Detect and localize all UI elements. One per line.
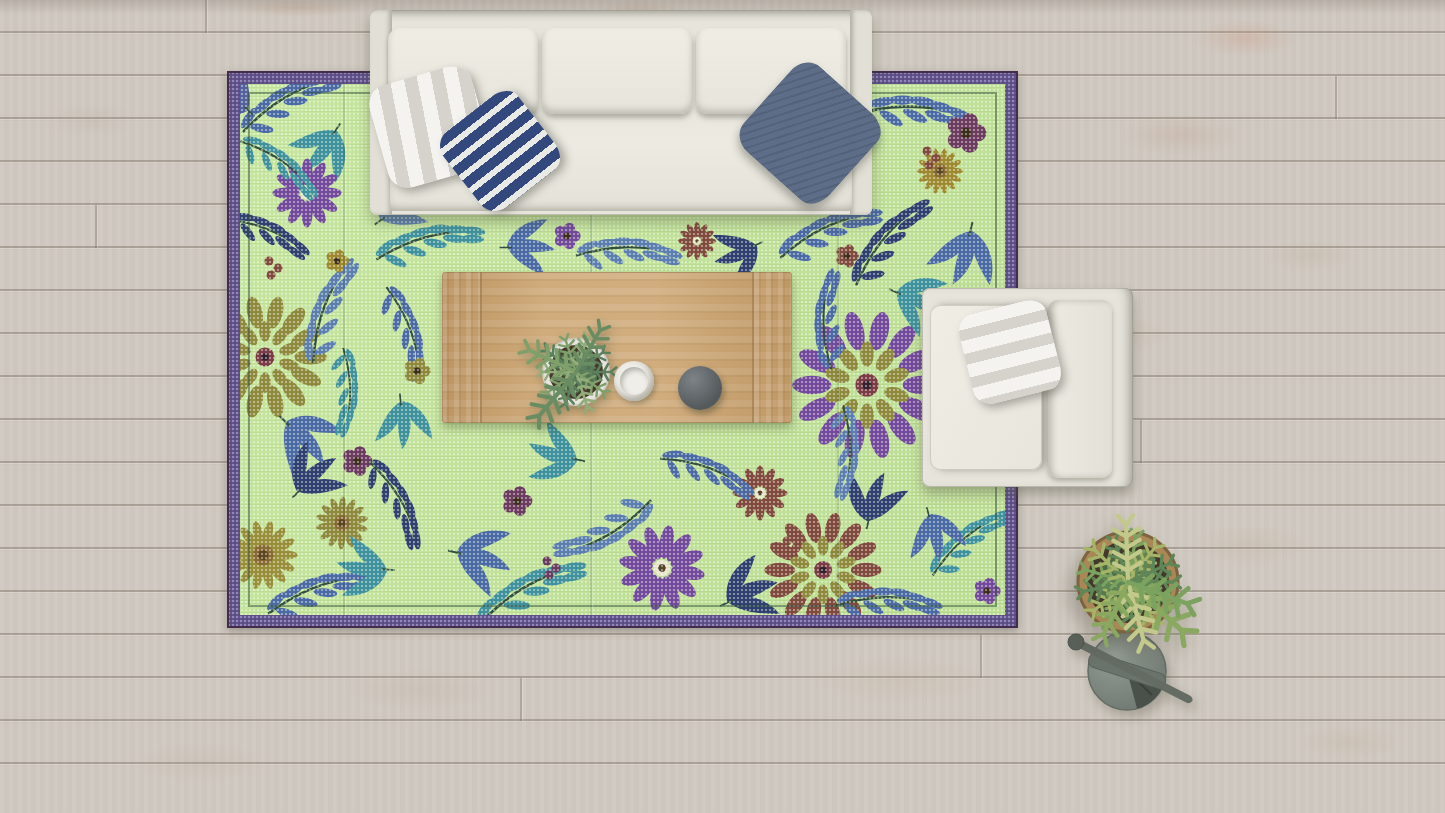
potted-plant-floor <box>1040 495 1240 695</box>
plank-joint <box>1140 420 1142 463</box>
plank-joint <box>1335 76 1337 119</box>
plant-foliage <box>1074 515 1202 653</box>
table-breadboard-end <box>752 272 792 423</box>
plank-joint <box>520 678 522 721</box>
white-bowl <box>614 361 654 401</box>
armchair-back-cushion <box>1048 300 1112 478</box>
plank-joint <box>205 0 207 33</box>
sofa <box>370 10 872 215</box>
living-room-scene <box>0 0 1445 813</box>
plank-joint <box>980 635 982 678</box>
dark-bowl <box>678 366 722 410</box>
sofa-back-cushion <box>542 28 692 114</box>
plank-joint <box>95 205 97 248</box>
armchair <box>922 288 1133 487</box>
table-breadboard-end <box>442 272 482 423</box>
